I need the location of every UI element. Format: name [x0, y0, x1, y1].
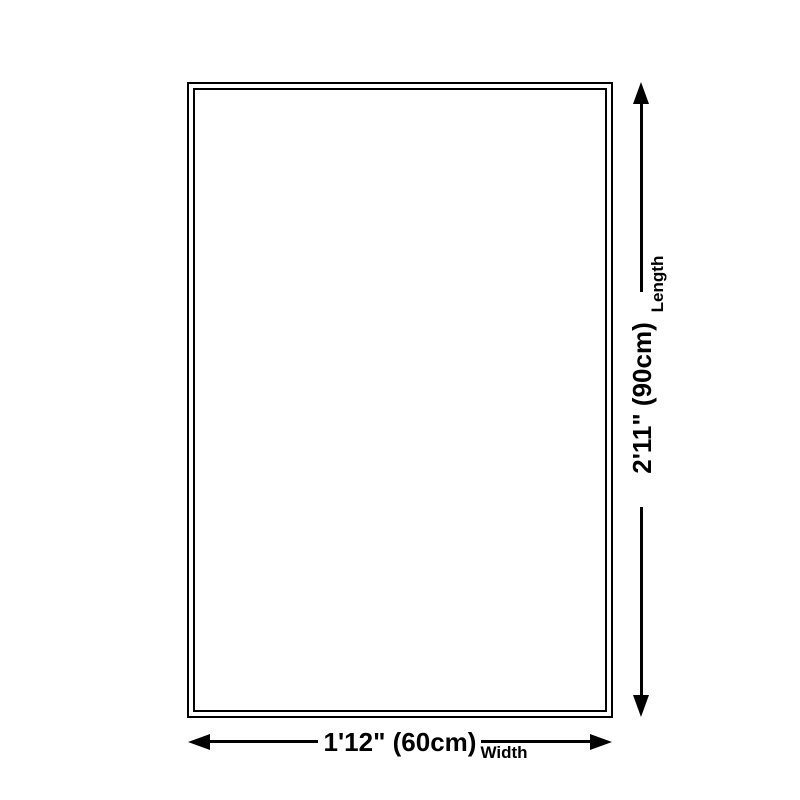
rug-outline-inner — [193, 88, 607, 712]
dimension-diagram: Length 2'11" (90cm) 1'12" (60cm) Width — [0, 0, 800, 800]
rug-outline — [187, 82, 613, 718]
length-dimension-line-lower — [640, 507, 643, 697]
length-arrow-down-icon — [633, 695, 649, 717]
width-arrow-right-icon — [590, 734, 612, 750]
width-dimension-line-left — [208, 740, 318, 743]
width-arrow-left-icon — [188, 734, 210, 750]
length-value: 2'11" (90cm) — [627, 288, 657, 508]
length-dimension-line-upper — [640, 101, 643, 292]
width-value: 1'12" (60cm) — [320, 727, 480, 757]
width-label: Width — [477, 744, 531, 762]
